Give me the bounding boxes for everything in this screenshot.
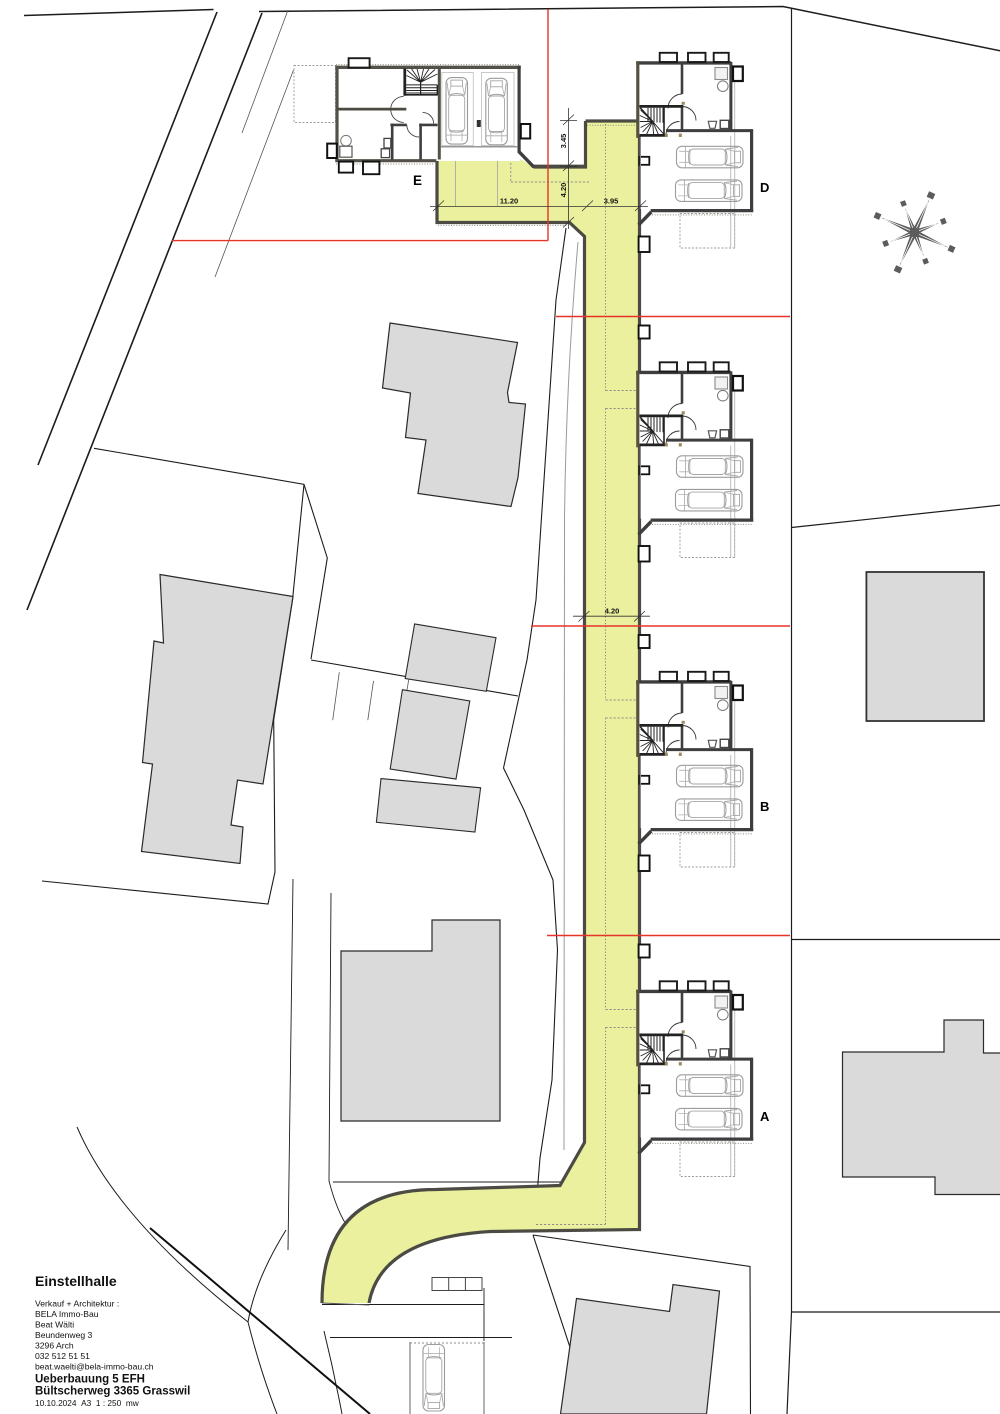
svg-text:Verkauf + Architektur :: Verkauf + Architektur : <box>35 1299 119 1309</box>
svg-text:B: B <box>760 799 769 814</box>
svg-text:Bültscherweg 3365 Grasswil: Bültscherweg 3365 Grasswil <box>35 1386 190 1398</box>
svg-text:10.10.2024 A3 1 : 250 mw: 10.10.2024 A3 1 : 250 mw <box>35 1398 140 1408</box>
svg-text:032 512 51 51: 032 512 51 51 <box>35 1351 90 1361</box>
svg-text:Ueberbauung 5 EFH: Ueberbauung 5 EFH <box>35 1374 145 1386</box>
svg-text:Beat Wälti: Beat Wälti <box>35 1320 74 1330</box>
svg-text:3.95: 3.95 <box>604 197 619 206</box>
svg-text:A: A <box>760 1109 770 1124</box>
svg-text:D: D <box>760 180 769 195</box>
svg-text:4.20: 4.20 <box>559 183 568 198</box>
svg-text:3.45: 3.45 <box>559 134 568 149</box>
svg-text:BELA Immo-Bau: BELA Immo-Bau <box>35 1309 99 1319</box>
svg-text:4.20: 4.20 <box>605 607 620 616</box>
svg-text:11.20: 11.20 <box>500 197 518 206</box>
svg-text:Einstellhalle: Einstellhalle <box>35 1273 117 1289</box>
svg-text:3296 Arch: 3296 Arch <box>35 1341 74 1351</box>
svg-text:beat.waelti@bela-immo-bau.ch: beat.waelti@bela-immo-bau.ch <box>35 1362 154 1372</box>
svg-text:E: E <box>413 173 422 188</box>
svg-text:Beundenweg 3: Beundenweg 3 <box>35 1330 93 1340</box>
